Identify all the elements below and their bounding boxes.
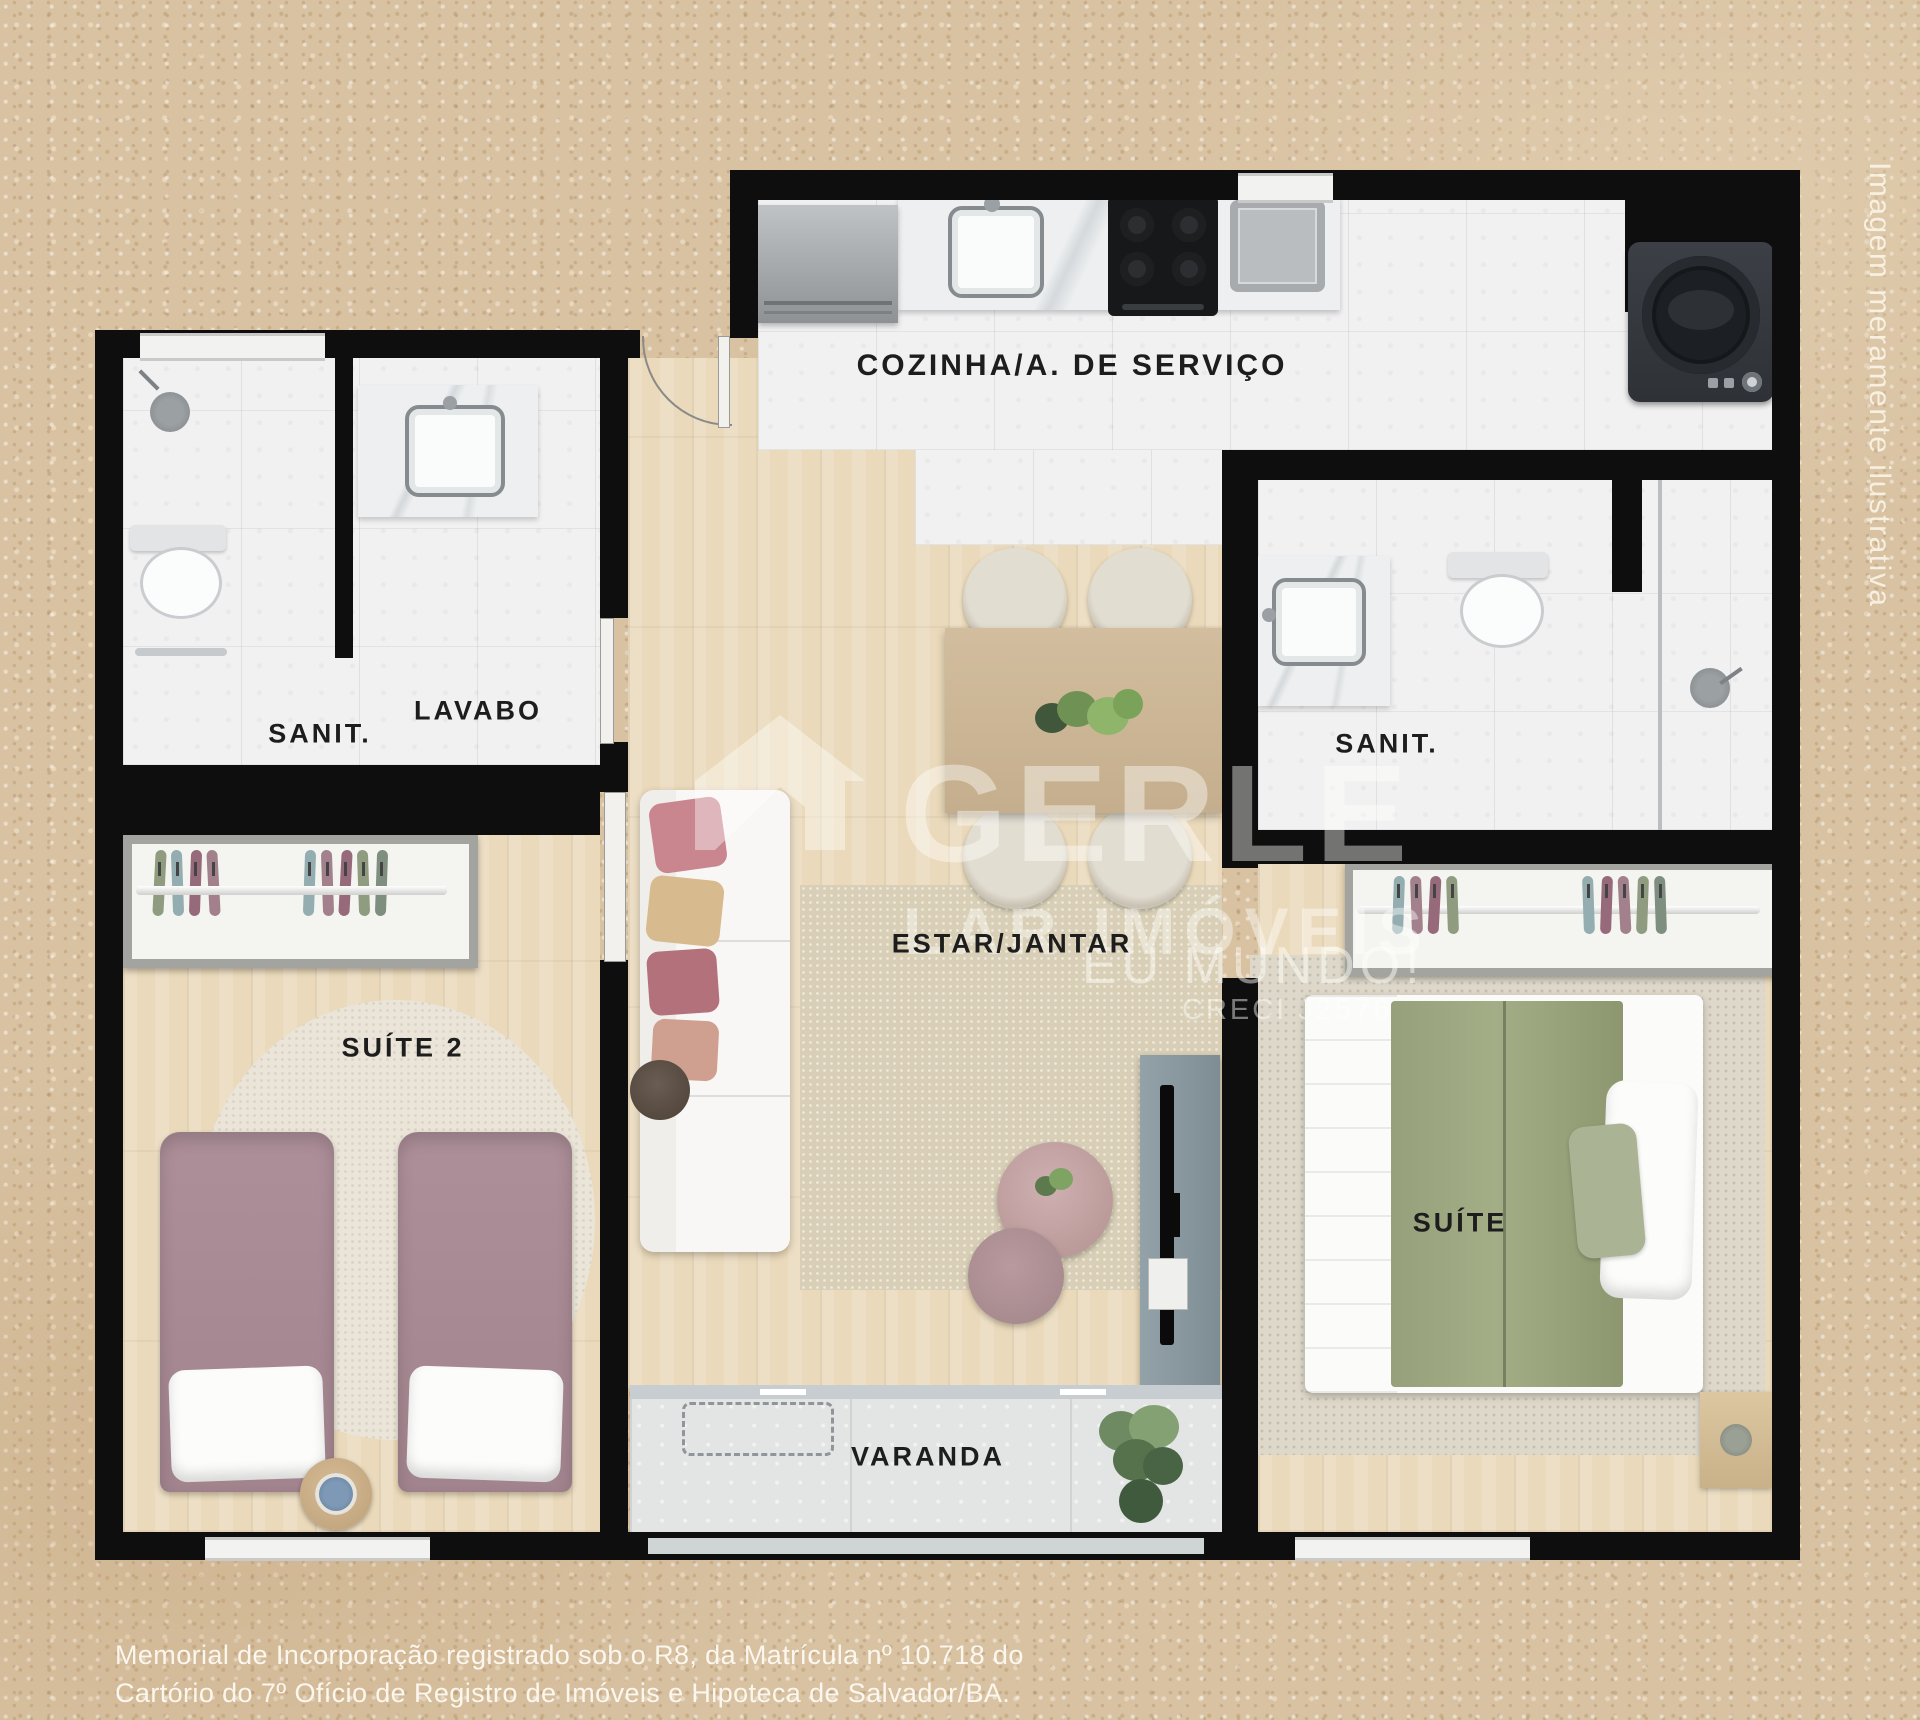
bath-right-faucet-icon (1262, 608, 1276, 622)
bedside-table (300, 1458, 372, 1530)
disclaimer-line-1: Memorial de Incorporação registrado sob … (115, 1636, 1024, 1674)
window (1295, 1537, 1530, 1561)
duvet-folds (1305, 995, 1397, 1393)
watermark-creci: CRECI J2576 (1182, 994, 1392, 1027)
balcony-plant (1095, 1405, 1205, 1530)
wall (600, 960, 628, 1532)
room-label-bath-right: SANIT. (1335, 729, 1439, 760)
window (1238, 173, 1333, 203)
media-box (1148, 1258, 1188, 1310)
wall (335, 358, 353, 658)
room-label-suite: SUÍTE (1413, 1208, 1508, 1239)
toilet (1448, 552, 1552, 652)
floorplan-page: { "meta": { "side_note": "Imagem meramen… (0, 0, 1920, 1720)
disclaimer-line-2: Cartório do 7º Ofício de Registro de Imó… (115, 1674, 1024, 1712)
watermark-tagline: EU MUNDO! (1082, 936, 1425, 996)
single-bed (398, 1132, 572, 1492)
wall (730, 170, 758, 338)
coffee-table (968, 1228, 1064, 1324)
sofa-pillow (645, 874, 725, 947)
shower-glass-divider (1658, 480, 1662, 830)
wall (95, 765, 600, 835)
ac-unit-dashed-outline (682, 1402, 834, 1456)
wall (600, 742, 628, 792)
toilet (130, 525, 230, 620)
kitchen-sink (948, 206, 1044, 298)
decor-plate (315, 1473, 357, 1515)
legal-disclaimer: Memorial de Incorporação registrado sob … (115, 1636, 1024, 1713)
laundry-tank-sink (1230, 200, 1325, 292)
coffee-table-plant (1035, 1168, 1075, 1208)
single-bed (160, 1132, 334, 1492)
wall (95, 330, 123, 1560)
cooktop (1108, 196, 1218, 316)
lavabo-faucet-icon (443, 396, 457, 410)
towel-bar (135, 648, 227, 656)
watermark-logo-house-icon (695, 715, 865, 850)
entry-door (642, 336, 730, 428)
balcony-glass-door (630, 1385, 1222, 1399)
bath-right-sink (1272, 578, 1366, 666)
room-label-lavabo: LAVABO (414, 696, 542, 727)
suite-bench (1700, 1392, 1772, 1488)
room-label-kitchen: COZINHA/A. DE SERVIÇO (857, 349, 1288, 383)
wall (600, 330, 628, 618)
room-label-suite2: SUÍTE 2 (341, 1033, 464, 1064)
balcony-railing (648, 1538, 1204, 1554)
room-label-bath-left: SANIT. (268, 719, 372, 750)
shower-head-icon (1690, 668, 1730, 708)
bench-lamp-icon (1720, 1424, 1752, 1456)
window (140, 333, 325, 361)
room-label-balcony: VARANDA (851, 1442, 1005, 1473)
kitchen-tile-tongue (915, 450, 1222, 545)
floor-pouf (630, 1060, 690, 1120)
room-label-living: ESTAR/JANTAR (892, 929, 1133, 960)
wall (1222, 978, 1258, 1532)
dishwasher (758, 205, 898, 323)
washing-machine (1628, 242, 1774, 402)
side-note: Imagem meramente ilustrativa (1862, 162, 1896, 607)
suite2-door (604, 792, 626, 962)
double-bed (1305, 995, 1703, 1393)
wall (1772, 170, 1800, 1560)
bed-pillow-accent (1567, 1122, 1646, 1259)
tv-panel (1140, 1055, 1220, 1390)
shower-head-icon (150, 392, 190, 432)
wardrobe-rod (136, 886, 447, 895)
wall (1222, 450, 1800, 480)
lavabo-sink (405, 405, 505, 497)
suite2-wardrobe (123, 835, 478, 968)
wall (1612, 480, 1642, 592)
window (205, 1537, 430, 1561)
sofa-pillow (646, 948, 720, 1017)
lavabo-door (600, 618, 614, 744)
